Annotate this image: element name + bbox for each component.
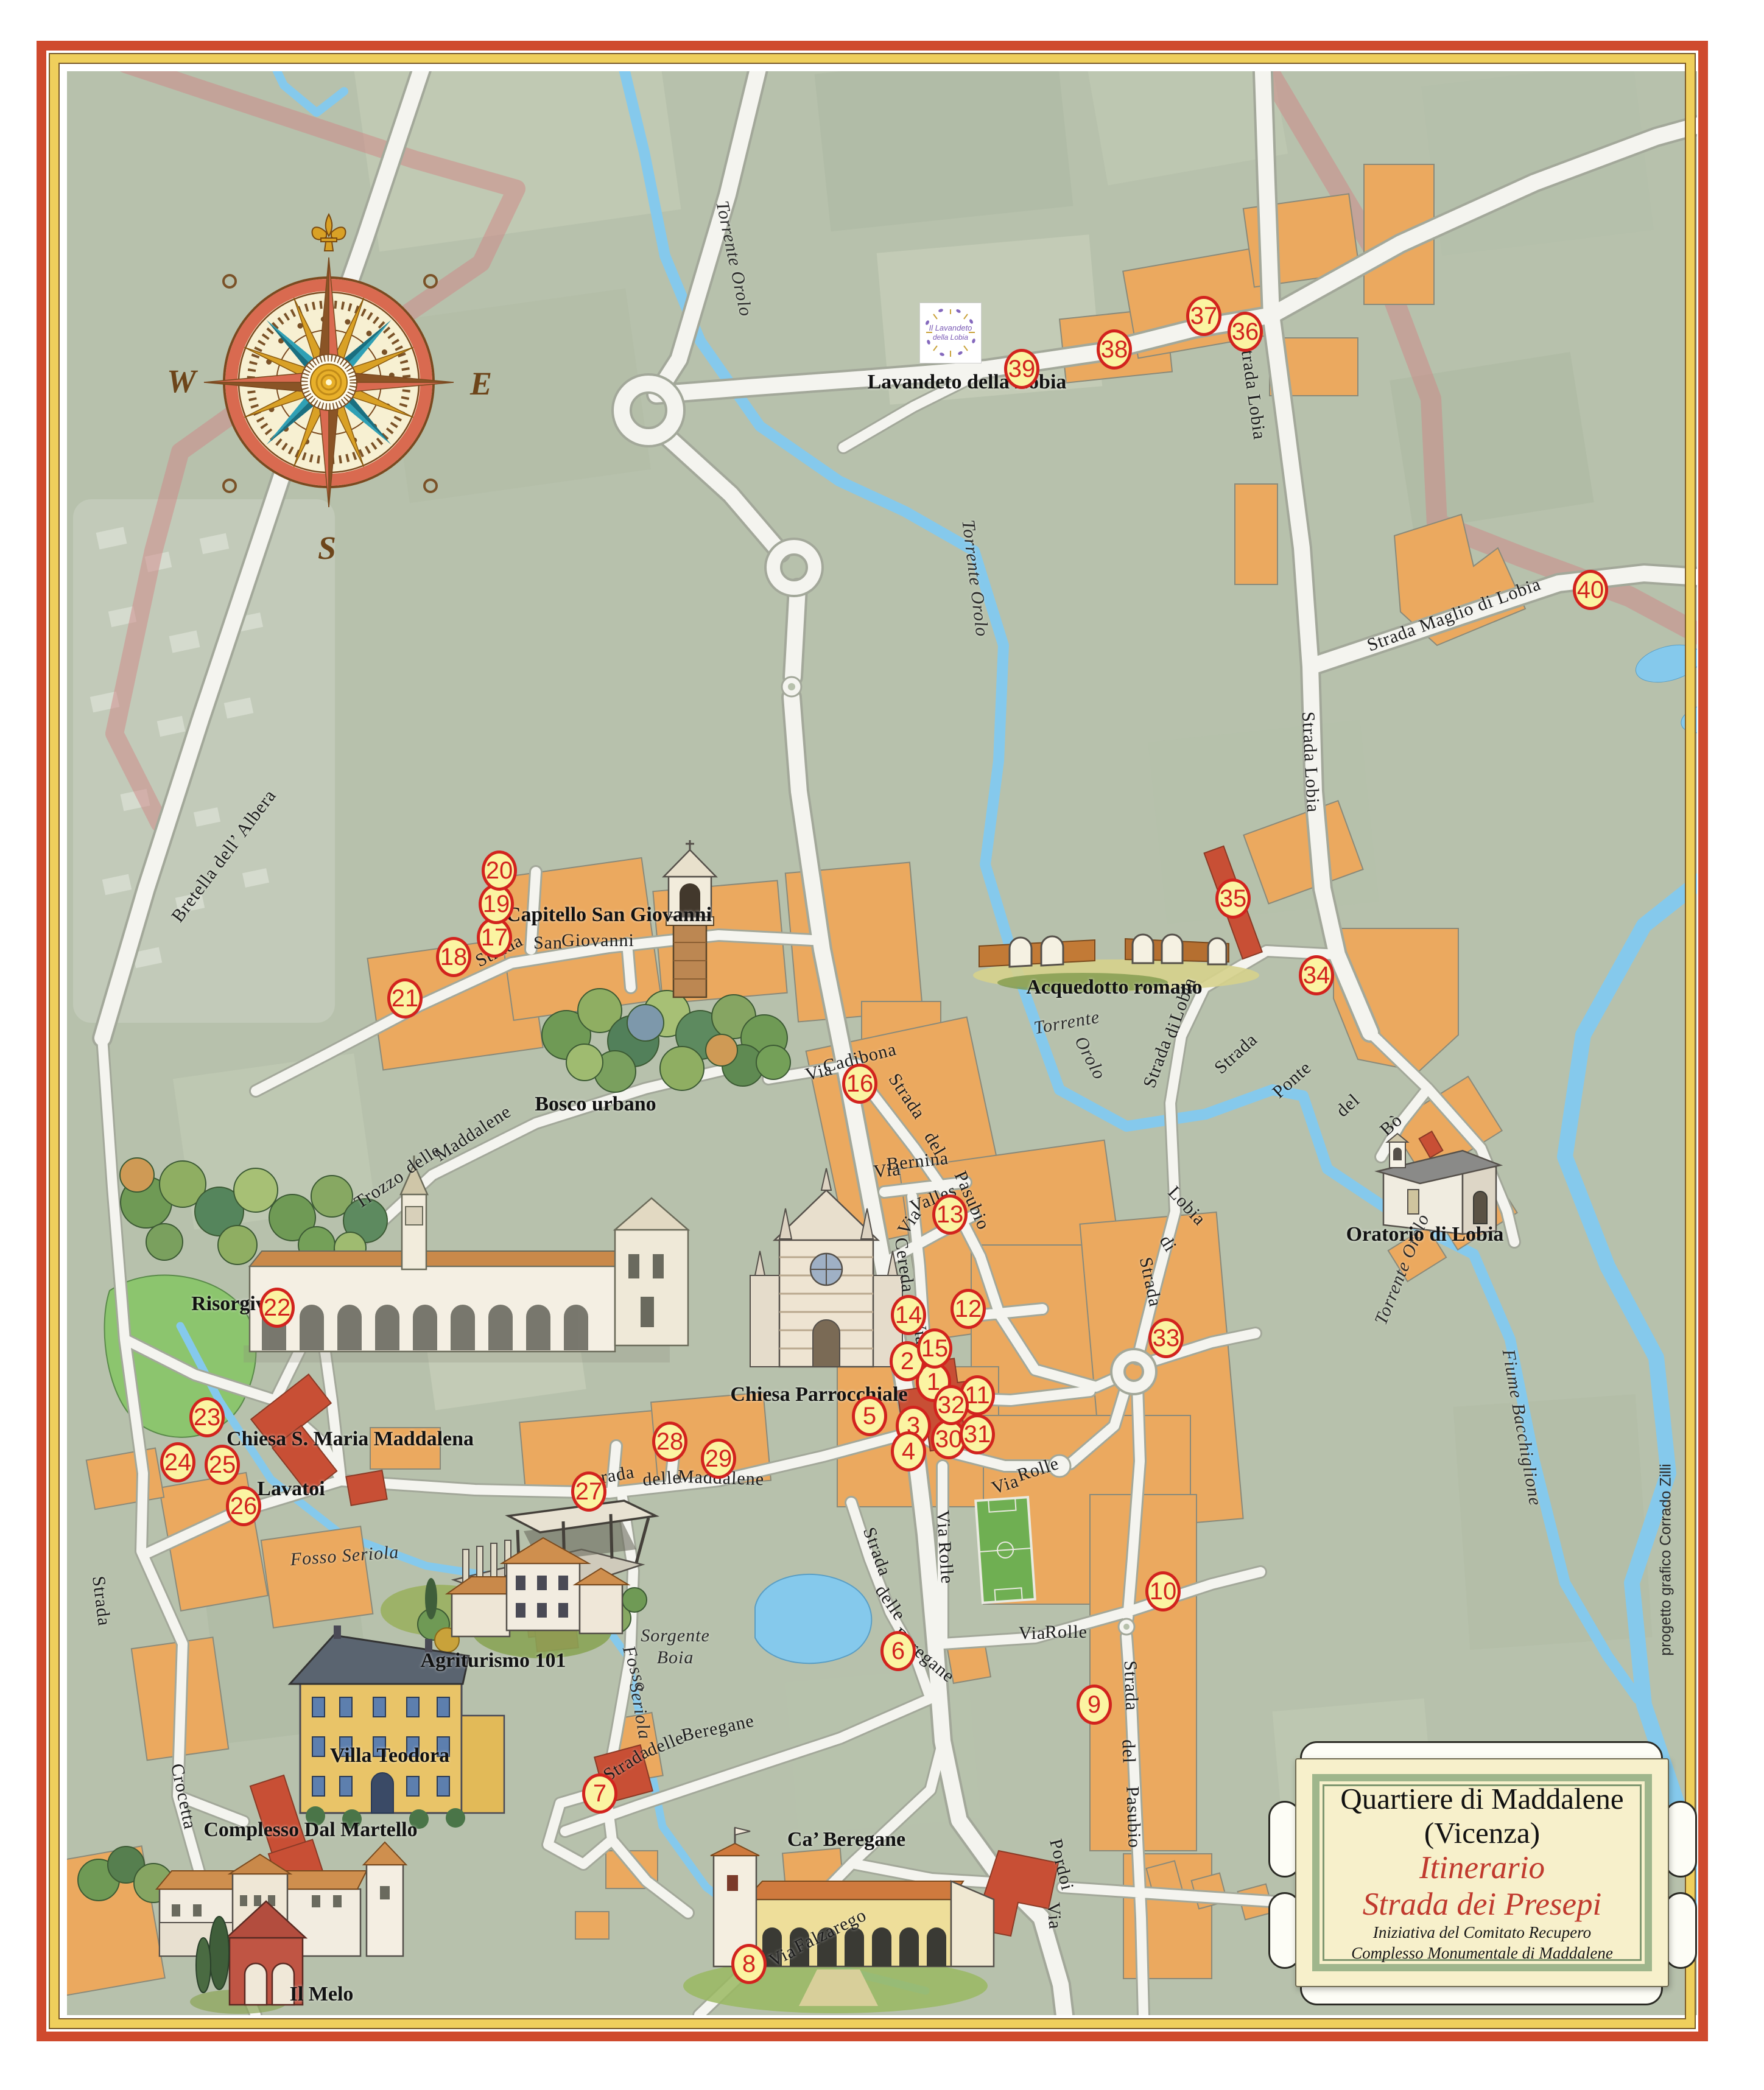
- itinerary-marker-22[interactable]: 22: [259, 1288, 295, 1328]
- itinerary-marker-5[interactable]: 5: [852, 1396, 887, 1436]
- cartouche-parchment: Quartiere di Maddalene (Vicenza) Itinera…: [1295, 1758, 1669, 1987]
- itinerary-marker-16[interactable]: 16: [842, 1064, 877, 1104]
- street-label-san: San: [533, 933, 563, 953]
- cartouche-subtitle-line2: Strada dei Presepi: [1363, 1887, 1602, 1923]
- itinerary-marker-21[interactable]: 21: [387, 978, 423, 1019]
- itinerary-marker-31[interactable]: 31: [960, 1414, 995, 1454]
- street-label-via: Via: [1019, 1623, 1046, 1644]
- street-label-strada: Strada: [1120, 1660, 1142, 1711]
- lavandeto-logo-line1: Il Lavandeto: [920, 324, 981, 332]
- street-label-via: Via: [932, 1510, 954, 1538]
- cartouche-title-line2: (Vicenza): [1424, 1816, 1540, 1850]
- itinerary-marker-35[interactable]: 35: [1215, 878, 1251, 919]
- lavandeto-logo: Il Lavandeto della Lobia: [919, 303, 982, 363]
- itinerary-marker-6[interactable]: 6: [880, 1631, 916, 1671]
- itinerary-marker-23[interactable]: 23: [189, 1397, 225, 1437]
- scroll-right-curl-2: [1664, 1892, 1697, 1969]
- itinerary-marker-37[interactable]: 37: [1186, 296, 1221, 336]
- street-label-sorgente: Sorgente: [641, 1625, 710, 1646]
- cartouche-title-line1: Quartiere di Maddalene: [1340, 1782, 1623, 1816]
- credit-text: progetto grafico Corrado Zilli: [1657, 1464, 1675, 1655]
- itinerary-marker-28[interactable]: 28: [652, 1422, 687, 1462]
- itinerary-marker-29[interactable]: 29: [701, 1439, 736, 1479]
- place-label-lavatoi: Lavatoi: [257, 1478, 325, 1501]
- place-label-acquedotto-romano: Acquedotto romano: [1026, 976, 1202, 999]
- place-label-chiesa-s-maria-maddalena: Chiesa S. Maria Maddalena: [227, 1428, 474, 1451]
- itinerary-marker-14[interactable]: 14: [891, 1295, 926, 1335]
- street-label-delle: delle: [642, 1467, 682, 1490]
- compass-letter-east: E: [470, 365, 492, 402]
- itinerary-marker-25[interactable]: 25: [205, 1445, 240, 1485]
- place-label-villa-teodora: Villa Teodora: [330, 1744, 449, 1767]
- place-label-complesso-dal-martello: Complesso Dal Martello: [203, 1818, 417, 1842]
- cartouche-subtitle-line1: Itinerario: [1419, 1850, 1545, 1886]
- itinerary-marker-34[interactable]: 34: [1299, 955, 1334, 995]
- street-label-via: Via: [1042, 1902, 1065, 1930]
- place-label-capitello-san-giovanni: Capitello San Giovanni: [506, 903, 712, 927]
- itinerary-marker-8[interactable]: 8: [731, 1944, 767, 1984]
- place-label-il-melo: Il Melo: [290, 1983, 354, 2006]
- itinerary-marker-20[interactable]: 20: [482, 850, 517, 891]
- title-cartouche: Quartiere di Maddalene (Vicenza) Itinera…: [1276, 1740, 1687, 2003]
- place-label-ca-beregane: Ca’ Beregane: [787, 1828, 905, 1851]
- cartouche-note-line2: Complesso Monumentale di Maddalene: [1351, 1943, 1613, 1964]
- itinerary-marker-18[interactable]: 18: [436, 937, 471, 977]
- itinerary-marker-15[interactable]: 15: [917, 1328, 952, 1369]
- itinerary-marker-13[interactable]: 13: [932, 1194, 968, 1235]
- itinerary-marker-40[interactable]: 40: [1573, 570, 1608, 610]
- itinerary-marker-39[interactable]: 39: [1004, 349, 1039, 389]
- place-label-agriturismo-101: Agriturismo 101: [421, 1649, 566, 1672]
- street-label-pasubio: Pasubio: [1122, 1786, 1145, 1848]
- scroll-right-curl-1: [1664, 1801, 1697, 1878]
- itinerary-marker-12[interactable]: 12: [951, 1289, 986, 1329]
- lavandeto-logo-line2: della Lobia: [920, 334, 981, 342]
- itinerary-marker-27[interactable]: 27: [571, 1471, 606, 1512]
- cartouche-green-frame: Quartiere di Maddalene (Vicenza) Itinera…: [1312, 1774, 1652, 1971]
- street-label-rolle: Rolle: [934, 1541, 958, 1585]
- itinerary-marker-26[interactable]: 26: [226, 1486, 261, 1526]
- itinerary-marker-4[interactable]: 4: [891, 1431, 926, 1471]
- cartouche-note-line1: Iniziativa del Comitato Recupero: [1373, 1923, 1591, 1943]
- itinerary-marker-33[interactable]: 33: [1148, 1318, 1184, 1358]
- compass-letter-west: W: [167, 362, 196, 400]
- place-label-oratorio-di-lobia: Oratorio di Lobia: [1346, 1223, 1504, 1246]
- itinerary-marker-10[interactable]: 10: [1145, 1571, 1181, 1611]
- street-label-giovanni: Giovanni: [561, 930, 634, 951]
- street-label-del: del: [1117, 1739, 1139, 1764]
- street-label-rolle: Rolle: [1045, 1622, 1088, 1643]
- place-label-bosco-urbano: Bosco urbano: [535, 1093, 656, 1116]
- itinerary-marker-9[interactable]: 9: [1077, 1685, 1112, 1725]
- inner-frame-yellow: [50, 54, 1695, 2028]
- itinerary-marker-38[interactable]: 38: [1097, 329, 1132, 370]
- compass-letter-south: S: [318, 529, 336, 567]
- street-label-boia: Boia: [657, 1647, 694, 1668]
- itinerary-marker-24[interactable]: 24: [160, 1442, 195, 1482]
- itinerary-marker-7[interactable]: 7: [582, 1773, 617, 1814]
- itinerary-marker-36[interactable]: 36: [1228, 312, 1263, 352]
- itinerary-marker-32[interactable]: 32: [933, 1385, 969, 1425]
